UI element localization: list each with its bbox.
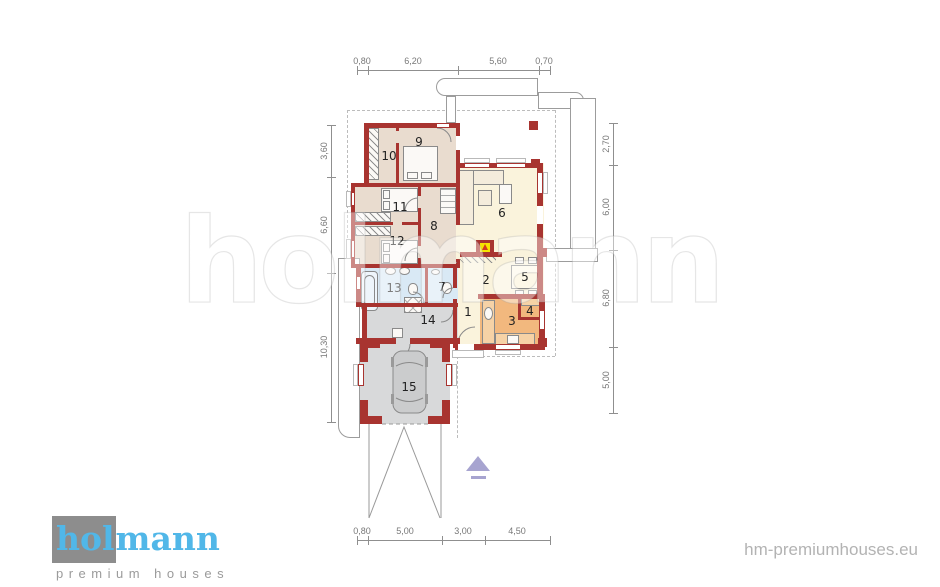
wall-segment <box>478 294 544 299</box>
door-arc <box>437 128 451 142</box>
wall-segment <box>425 266 428 305</box>
room-label-4: 4 <box>526 304 534 318</box>
door-arc <box>441 310 453 322</box>
window <box>351 192 355 206</box>
dimension-tick <box>550 66 551 75</box>
dimension-tick <box>357 66 358 75</box>
wall-segment <box>351 264 460 268</box>
dimension-label: 6,00 <box>601 198 611 216</box>
door-arc <box>405 248 418 261</box>
chimney <box>531 159 540 168</box>
floorplan-page: 9 10 11 12 8 6 2 5 13 7 1 14 3 4 15 0,80… <box>0 0 940 587</box>
driveway-outline <box>369 424 441 518</box>
entrance-arrow-icon <box>466 456 490 471</box>
room-label-10: 10 <box>381 149 396 163</box>
door-opening <box>453 288 457 299</box>
dimension-label: 6,80 <box>601 289 611 307</box>
dimension-tick <box>327 125 336 126</box>
dimension-label: 3,60 <box>319 142 329 160</box>
brand-tagline: premium houses <box>56 566 229 581</box>
garage-window <box>358 364 364 386</box>
dimension-label: 5,60 <box>489 56 507 66</box>
dimension-label: 6,20 <box>404 56 422 66</box>
room-label-9: 9 <box>415 135 423 149</box>
room-label-2: 2 <box>482 273 490 287</box>
garage-window <box>446 364 452 386</box>
door-opening <box>396 131 399 143</box>
wall-segment <box>351 222 393 225</box>
garage-wall <box>360 340 380 348</box>
window <box>495 344 521 350</box>
wall-hatch <box>456 257 496 263</box>
window <box>356 276 361 290</box>
wall-segment <box>456 123 460 183</box>
room-label-5: 5 <box>521 270 529 284</box>
dimension-tick <box>368 536 369 545</box>
room-label-12: 12 <box>389 234 404 248</box>
room-label-1: 1 <box>464 305 472 319</box>
corner-post <box>538 338 547 347</box>
room-label-15: 15 <box>401 380 416 394</box>
dimension-label: 3,00 <box>454 526 472 536</box>
door-arc <box>413 292 424 303</box>
dimension-tick <box>368 66 369 75</box>
room-label-7: 7 <box>438 280 446 294</box>
window <box>539 310 545 330</box>
garage-wall <box>360 416 382 424</box>
room-label-14: 14 <box>420 313 435 327</box>
room-label-8: 8 <box>430 219 438 233</box>
driveway-triangle <box>369 427 440 518</box>
dimension-tick <box>485 536 486 545</box>
dimension-tick <box>609 123 618 124</box>
window <box>496 163 526 168</box>
garage-wall <box>428 416 450 424</box>
door-opening <box>418 196 421 208</box>
dimension-tick <box>609 347 618 348</box>
flame-icon <box>482 244 488 250</box>
chimney <box>529 121 538 130</box>
dimension-tick <box>327 177 336 178</box>
brand-wordmark-rest: mann <box>116 519 220 558</box>
dimension-line-top <box>357 70 550 71</box>
wall-segment <box>402 222 418 225</box>
wall-segment <box>364 123 369 187</box>
dimension-label: 0,70 <box>535 56 553 66</box>
room-label-6: 6 <box>498 206 506 220</box>
brand-wordmark-highlight: hol <box>52 516 116 563</box>
brand-wordmark: holmann <box>52 520 229 558</box>
dimension-tick <box>327 422 336 423</box>
dimension-tick <box>609 250 618 251</box>
wall-segment <box>362 307 367 340</box>
room-label-3: 3 <box>508 314 516 328</box>
wall-segment <box>364 183 460 187</box>
dimension-label: 6,60 <box>319 216 329 234</box>
terrace-door-opening <box>537 206 543 224</box>
dimension-tick <box>357 536 358 545</box>
dimension-label: 4,50 <box>508 526 526 536</box>
dimension-label: 5,00 <box>601 371 611 389</box>
front-door-opening <box>458 344 474 350</box>
door-opening <box>396 338 410 344</box>
dimension-label: 0,80 <box>353 526 371 536</box>
dimension-label: 10,30 <box>319 336 329 359</box>
door-arc <box>458 327 475 344</box>
dimension-line-bottom <box>357 540 550 541</box>
room-label-11: 11 <box>392 200 407 214</box>
entrance-arrow-bar <box>471 476 486 479</box>
terrace-door-opening <box>436 123 450 128</box>
pergola-post <box>538 248 547 257</box>
opening <box>456 225 460 259</box>
dimension-tick <box>609 165 618 166</box>
brand-logo: holmann premium houses <box>52 520 229 581</box>
dimension-label: 0,80 <box>353 56 371 66</box>
door-opening <box>456 136 460 150</box>
dimension-label: 2,70 <box>601 135 611 153</box>
door-opening <box>418 246 421 258</box>
garage-wall <box>430 340 450 348</box>
wall-segment <box>356 303 458 307</box>
dimension-line-right <box>613 123 614 413</box>
dimension-tick <box>458 66 459 75</box>
dimension-tick <box>327 273 336 274</box>
dimension-tick <box>539 66 540 75</box>
plan-linework <box>0 0 940 587</box>
dimension-label: 5,00 <box>396 526 414 536</box>
dimension-tick <box>609 413 618 414</box>
dimension-tick <box>442 536 443 545</box>
website-url: hm-premiumhouses.eu <box>742 540 918 560</box>
window <box>464 163 490 168</box>
room-label-13: 13 <box>386 281 401 295</box>
window <box>351 240 355 258</box>
dimension-tick <box>550 536 551 545</box>
wall-segment <box>453 266 457 348</box>
window <box>537 172 543 194</box>
